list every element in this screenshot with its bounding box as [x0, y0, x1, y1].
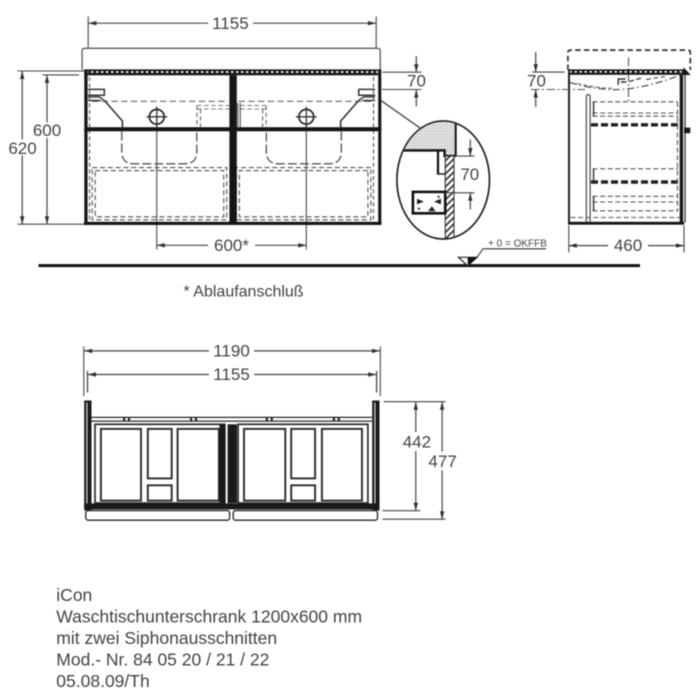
svg-text:477: 477: [428, 452, 456, 471]
svg-text:1190: 1190: [213, 342, 250, 361]
svg-text:iCon: iCon: [56, 585, 92, 605]
svg-text:05.08.09/Th: 05.08.09/Th: [56, 671, 149, 691]
svg-text:mit zwei Siphonausschnitten: mit zwei Siphonausschnitten: [56, 628, 277, 648]
svg-text:+ 0 = OKFFB: + 0 = OKFFB: [488, 238, 547, 249]
svg-text:Mod.- Nr. 84 05 20 / 21 / 22: Mod.- Nr. 84 05 20 / 21 / 22: [56, 649, 269, 669]
svg-text:1155: 1155: [213, 365, 250, 384]
svg-text:70: 70: [407, 71, 426, 90]
svg-text:70: 70: [460, 165, 479, 184]
svg-text:442: 442: [403, 433, 431, 452]
svg-text:600*: 600*: [214, 236, 249, 255]
svg-text:70: 70: [527, 72, 546, 91]
svg-text:600: 600: [33, 121, 61, 140]
svg-text:460: 460: [614, 236, 642, 255]
svg-text:620: 620: [8, 139, 36, 158]
svg-text:1155: 1155: [212, 14, 249, 33]
svg-text:* Ablaufanschluß: * Ablaufanschluß: [184, 284, 304, 301]
svg-text:Waschtischunterschrank 1200x60: Waschtischunterschrank 1200x600 mm: [56, 606, 362, 626]
